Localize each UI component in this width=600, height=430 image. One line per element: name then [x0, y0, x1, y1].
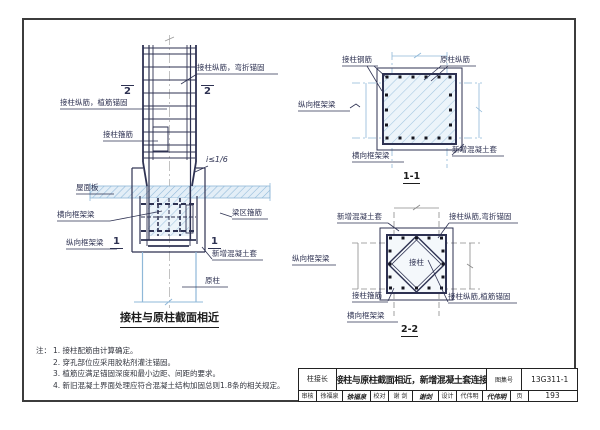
label-transverse-beam-1-1: 横向框架梁	[352, 152, 390, 160]
page-number: 193	[529, 391, 576, 402]
page-label: 页	[511, 391, 529, 402]
notes: 注： 1. 接柱配筋由计算确定。 2. 穿孔部位应采用胶粘剂灌注锚固。 3. 植…	[36, 345, 284, 391]
section-mark-2-right: 2	[201, 85, 214, 97]
designer-signature: 代伟明	[483, 391, 511, 402]
section-mark-2-left: 2	[121, 85, 134, 97]
designer-label: 设计	[439, 391, 457, 402]
note-line-3: 3. 植筋应满足锚固深度和最小边距、间距的要求。	[53, 368, 284, 380]
label-new-jacket: 新增混凝土套	[212, 250, 257, 258]
label-planted-anchor: 接柱纵筋，植筋锚固	[60, 99, 128, 107]
reviewer-label: 审核	[299, 391, 317, 402]
label-original-column: 原柱	[205, 277, 220, 285]
title-block: 柱接长 接柱与原柱截面相近，新增混凝土套连接 图集号 13G311-1 审核 徐…	[298, 368, 578, 402]
section-mark-1-left: 1	[110, 237, 123, 249]
section-mark-1-right: 1	[208, 237, 221, 249]
atlas-no-value: 13G311-1	[522, 369, 577, 390]
checker-name: 谢 剑	[389, 391, 413, 402]
label-column-stirrup-2-2: 接柱箍筋	[352, 292, 382, 300]
label-new-jacket-1-1: 新增混凝土套	[452, 146, 497, 154]
note-line-1: 1. 接柱配筋由计算确定。	[53, 345, 284, 357]
label-longitudinal-beam: 纵向框架梁	[66, 239, 104, 247]
note-line-2: 2. 穿孔部位应采用胶粘剂灌注锚固。	[53, 357, 284, 369]
checker-label: 校对	[371, 391, 389, 402]
designer-name: 代伟明	[457, 391, 483, 402]
label-transverse-beam: 横向框架梁	[57, 211, 95, 219]
section-2-2-drawing	[292, 205, 518, 322]
label-longitudinal-beam-2-2: 纵向框架梁	[292, 255, 330, 263]
label-splice-rebar: 接柱钢筋	[342, 56, 372, 64]
label-bend-anchor-2-2: 接柱纵筋,弯折锚固	[449, 213, 511, 221]
reviewer-signature: 徐福泉	[343, 391, 371, 402]
atlas-page: 接柱纵筋，弯折锚固 接柱纵筋，植筋锚固 接柱箍筋 i≤1/6 屋面板 横向框架梁…	[0, 0, 600, 430]
label-orig-rebar: 原柱纵筋	[440, 56, 470, 64]
notes-prefix: 注：	[36, 345, 51, 357]
sheet-title: 接柱与原柱截面相近，新增混凝土套连接	[337, 369, 487, 390]
atlas-no-label: 图集号	[487, 369, 523, 390]
label-planted-anchor-2-2: 接柱纵筋,植筋锚固	[448, 293, 510, 301]
label-longitudinal-beam-1-1: 纵向框架梁	[298, 101, 336, 109]
category-cell: 柱接长	[299, 369, 337, 390]
checker-signature: 谢剑	[413, 391, 439, 402]
title-block-row-1: 柱接长 接柱与原柱截面相近，新增混凝土套连接 图集号 13G311-1	[299, 369, 577, 390]
label-column-stirrup: 接柱箍筋	[103, 131, 133, 139]
reviewer-name: 徐福泉	[317, 391, 343, 402]
label-beam-stirrup: 梁区箍筋	[232, 209, 262, 217]
title-block-row-2: 审核 徐福泉 徐福泉 校对 谢 剑 谢剑 设计 代伟明 代伟明 页 193	[299, 390, 577, 402]
label-bend-anchor: 接柱纵筋，弯折锚固	[197, 64, 265, 72]
elevation-title: 接柱与原柱截面相近	[120, 309, 219, 328]
label-new-jacket-2-2: 新增混凝土套	[337, 213, 382, 221]
elevation-drawing	[57, 35, 278, 308]
label-column-core: 接柱	[409, 259, 424, 267]
section-caption-1-1: 1-1	[403, 172, 420, 184]
label-transverse-beam-2-2: 横向框架梁	[347, 312, 385, 320]
note-line-4: 4. 新旧混凝土界面处理应符合混凝土结构加固总则1.8条的相关规定。	[53, 380, 284, 392]
label-roof-slab: 屋面板	[76, 184, 99, 192]
label-slope: i≤1/6	[206, 156, 228, 164]
section-caption-2-2: 2-2	[401, 325, 418, 337]
